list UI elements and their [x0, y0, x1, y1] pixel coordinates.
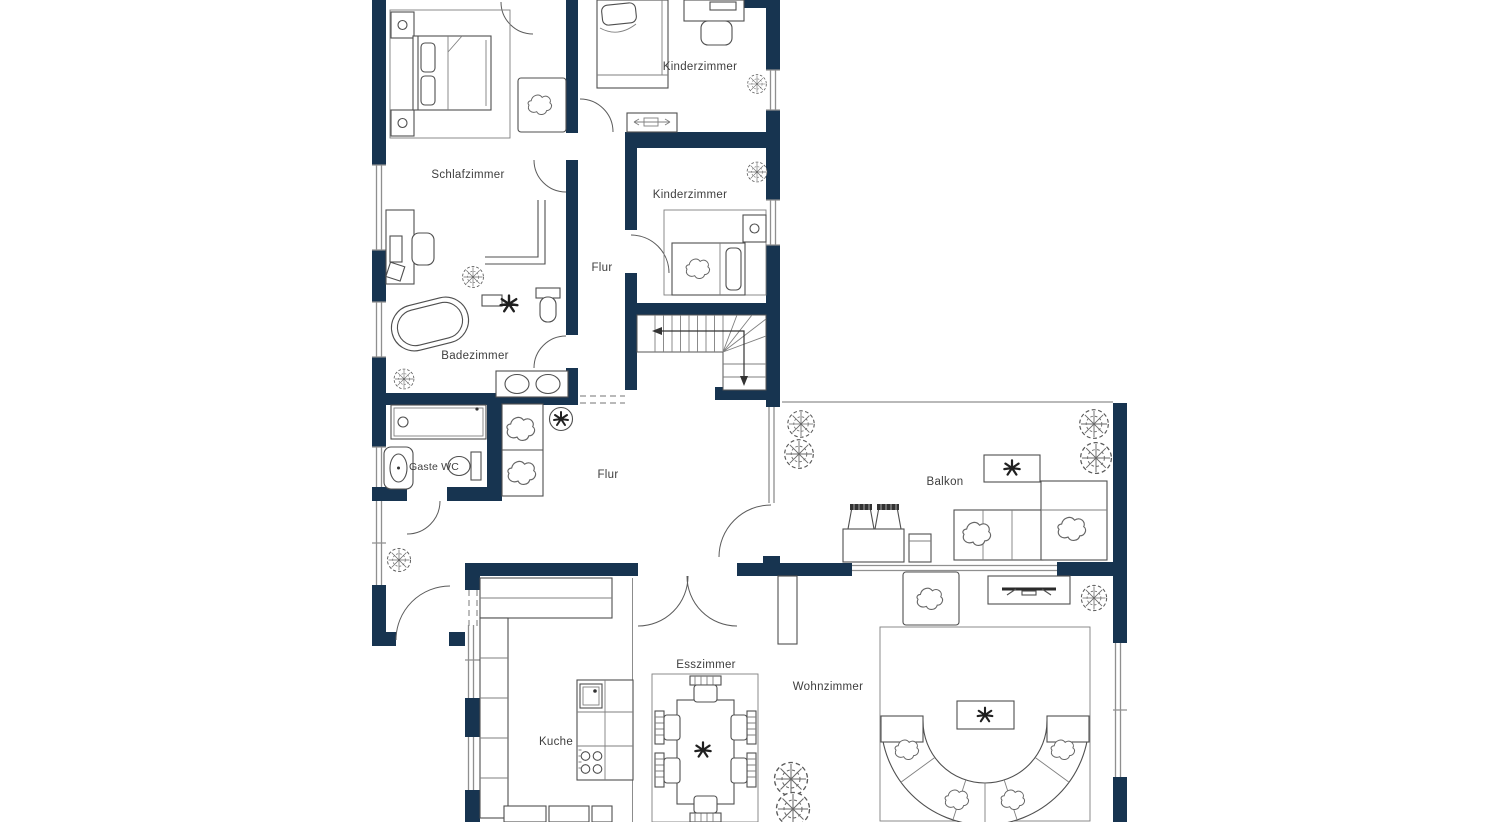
room-wohnzimmer	[778, 572, 1107, 822]
dining-chair-icon	[690, 676, 721, 702]
dresser-icon	[627, 113, 677, 132]
room-flur	[387, 548, 410, 571]
shower-icon	[391, 405, 486, 439]
label-kinderzimmer-1: Kinderzimmer	[663, 61, 738, 73]
dining-chair-icon	[655, 711, 680, 744]
double-door-arc	[638, 576, 688, 626]
kitchen-lower-cabinets-icon	[504, 806, 612, 822]
label-schlafzimmer: Schlafzimmer	[431, 169, 504, 181]
label-esszimmer: Esszimmer	[676, 659, 736, 671]
label-kueche: Kuche	[539, 736, 573, 748]
room-kinderzimmer-2	[664, 162, 767, 295]
single-bed-icon	[597, 0, 668, 88]
armchair-icon	[518, 78, 566, 132]
bathtub-icon	[387, 292, 474, 356]
label-gaeste-wc: Gaste WC	[409, 461, 459, 473]
desk-icon	[386, 210, 434, 284]
balcony-table-icon	[984, 455, 1040, 482]
room-kueche	[480, 578, 633, 822]
ceiling-fan-icon	[550, 408, 573, 431]
desk-chair-icon	[412, 233, 434, 265]
label-kinderzimmer-2: Kinderzimmer	[653, 189, 728, 201]
kitchen-cabinets-icon	[480, 618, 508, 818]
plant-icon	[1081, 443, 1112, 474]
coffee-table-icon	[957, 701, 1014, 729]
shelf	[482, 295, 502, 306]
nightstand-icon	[391, 110, 414, 136]
dining-chair-icon	[690, 796, 721, 822]
pillar	[778, 576, 797, 644]
double-bed-icon	[413, 36, 491, 110]
dining-chair-icon	[731, 753, 756, 787]
nightstand-icon	[391, 12, 414, 38]
plant-icon	[463, 267, 484, 288]
double-door-arc	[687, 576, 737, 626]
plant-icon	[788, 411, 814, 437]
room-esszimmer	[652, 674, 810, 822]
room-gaeste-wc	[384, 404, 573, 496]
balcony-chair-icon	[875, 504, 901, 529]
dining-table-icon	[677, 700, 734, 804]
kitchen-island-icon	[577, 680, 633, 780]
curved-sofa-icon	[881, 716, 1089, 822]
room-badezimmer	[387, 288, 568, 397]
plant-icon	[387, 548, 410, 571]
balcony-door-arc	[719, 505, 771, 557]
balcony-sofa-icon	[954, 481, 1107, 560]
door-arc	[534, 160, 566, 192]
plant-icon	[1080, 410, 1109, 439]
door-arc	[631, 235, 669, 273]
room-schlafzimmer	[386, 10, 566, 287]
tv-sideboard-icon	[988, 576, 1070, 604]
dining-chair-icon	[731, 711, 756, 744]
floorplan-canvas: Schlafzimmer Kinderzimmer Kinderzimmer F…	[0, 0, 1500, 822]
floorplan-svg: Schlafzimmer Kinderzimmer Kinderzimmer F…	[0, 0, 1500, 822]
label-flur-1: Flur	[591, 262, 612, 274]
double-sink-icon	[496, 371, 568, 397]
balcony-chair-icon	[848, 504, 874, 529]
kitchen-counter-icon	[480, 578, 612, 618]
door-arc	[501, 2, 533, 34]
plant-icon	[748, 75, 767, 94]
label-flur-2: Flur	[597, 469, 618, 481]
plant-icon	[747, 162, 767, 182]
wardrobe-icon	[485, 200, 545, 264]
label-wohnzimmer: Wohnzimmer	[793, 681, 864, 693]
door-arc	[534, 336, 566, 368]
side-table-icon	[909, 534, 931, 562]
plant-icon	[775, 763, 808, 796]
balcony-bench	[843, 529, 904, 562]
dining-chair-icon	[655, 753, 680, 787]
plant-icon	[785, 440, 814, 469]
label-balkon: Balkon	[927, 476, 964, 488]
desk-chair-icon	[701, 21, 732, 45]
nightstand-icon	[743, 215, 766, 242]
staircase	[637, 315, 766, 390]
door-arc	[407, 501, 440, 534]
armchair-icon	[903, 572, 959, 625]
hall-wardrobe-icon	[502, 404, 543, 496]
label-badezimmer: Badezimmer	[441, 350, 509, 362]
door-arc	[580, 99, 613, 132]
toilet-icon	[536, 288, 560, 322]
plant-icon	[394, 369, 414, 389]
plant-icon	[777, 793, 810, 822]
door-arc	[396, 586, 450, 640]
plant-icon	[501, 296, 518, 312]
single-bed-icon	[672, 243, 745, 295]
desk-icon	[684, 0, 744, 45]
plant-icon	[1081, 585, 1106, 610]
